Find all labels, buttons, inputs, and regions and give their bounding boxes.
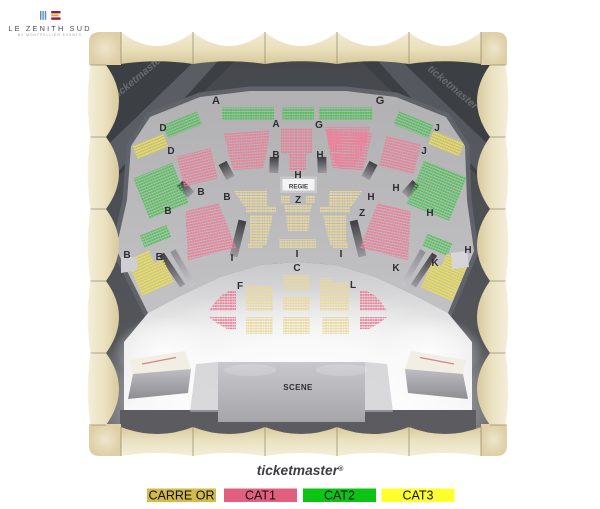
svg-text:I: I: [340, 249, 343, 260]
svg-text:G: G: [315, 120, 323, 131]
svg-text:A: A: [272, 119, 279, 130]
svg-text:F: F: [237, 281, 243, 292]
svg-text:J: J: [434, 123, 440, 134]
svg-text:I: I: [231, 253, 234, 264]
svg-text:G: G: [376, 95, 385, 107]
svg-text:CAT1: CAT1: [245, 489, 276, 503]
svg-text:K: K: [392, 263, 400, 274]
svg-text:H: H: [316, 150, 323, 161]
svg-text:B: B: [164, 206, 171, 217]
svg-text:B: B: [223, 192, 230, 203]
svg-text:E: E: [156, 252, 163, 263]
svg-text:CARRE OR: CARRE OR: [149, 489, 215, 503]
svg-text:H: H: [426, 208, 433, 219]
svg-text:H: H: [464, 245, 471, 256]
svg-text:ticketmaster®: ticketmaster®: [257, 463, 344, 478]
svg-text:B: B: [123, 250, 130, 261]
svg-text:B: B: [272, 150, 279, 161]
svg-text:Z: Z: [359, 208, 365, 219]
svg-text:BY MONTPELLIER EVENTS: BY MONTPELLIER EVENTS: [18, 33, 82, 37]
svg-text:SCENE: SCENE: [283, 383, 313, 392]
svg-text:C: C: [293, 263, 300, 274]
svg-text:D: D: [167, 146, 174, 157]
svg-text:B: B: [197, 187, 204, 198]
svg-text:J: J: [421, 146, 427, 157]
svg-text:Z: Z: [295, 195, 301, 206]
svg-text:L: L: [350, 280, 356, 291]
svg-text:REGIE: REGIE: [289, 184, 308, 191]
svg-text:CAT2: CAT2: [324, 489, 355, 503]
svg-text:K: K: [431, 258, 439, 269]
svg-text:LE ZENITH SUD: LE ZENITH SUD: [8, 24, 91, 33]
svg-text:A: A: [212, 95, 220, 107]
svg-text:I: I: [296, 249, 299, 260]
svg-text:H: H: [367, 192, 374, 203]
svg-text:H: H: [294, 170, 301, 181]
svg-text:D: D: [159, 123, 166, 134]
svg-text:H: H: [392, 183, 399, 194]
svg-text:CAT3: CAT3: [402, 489, 433, 503]
